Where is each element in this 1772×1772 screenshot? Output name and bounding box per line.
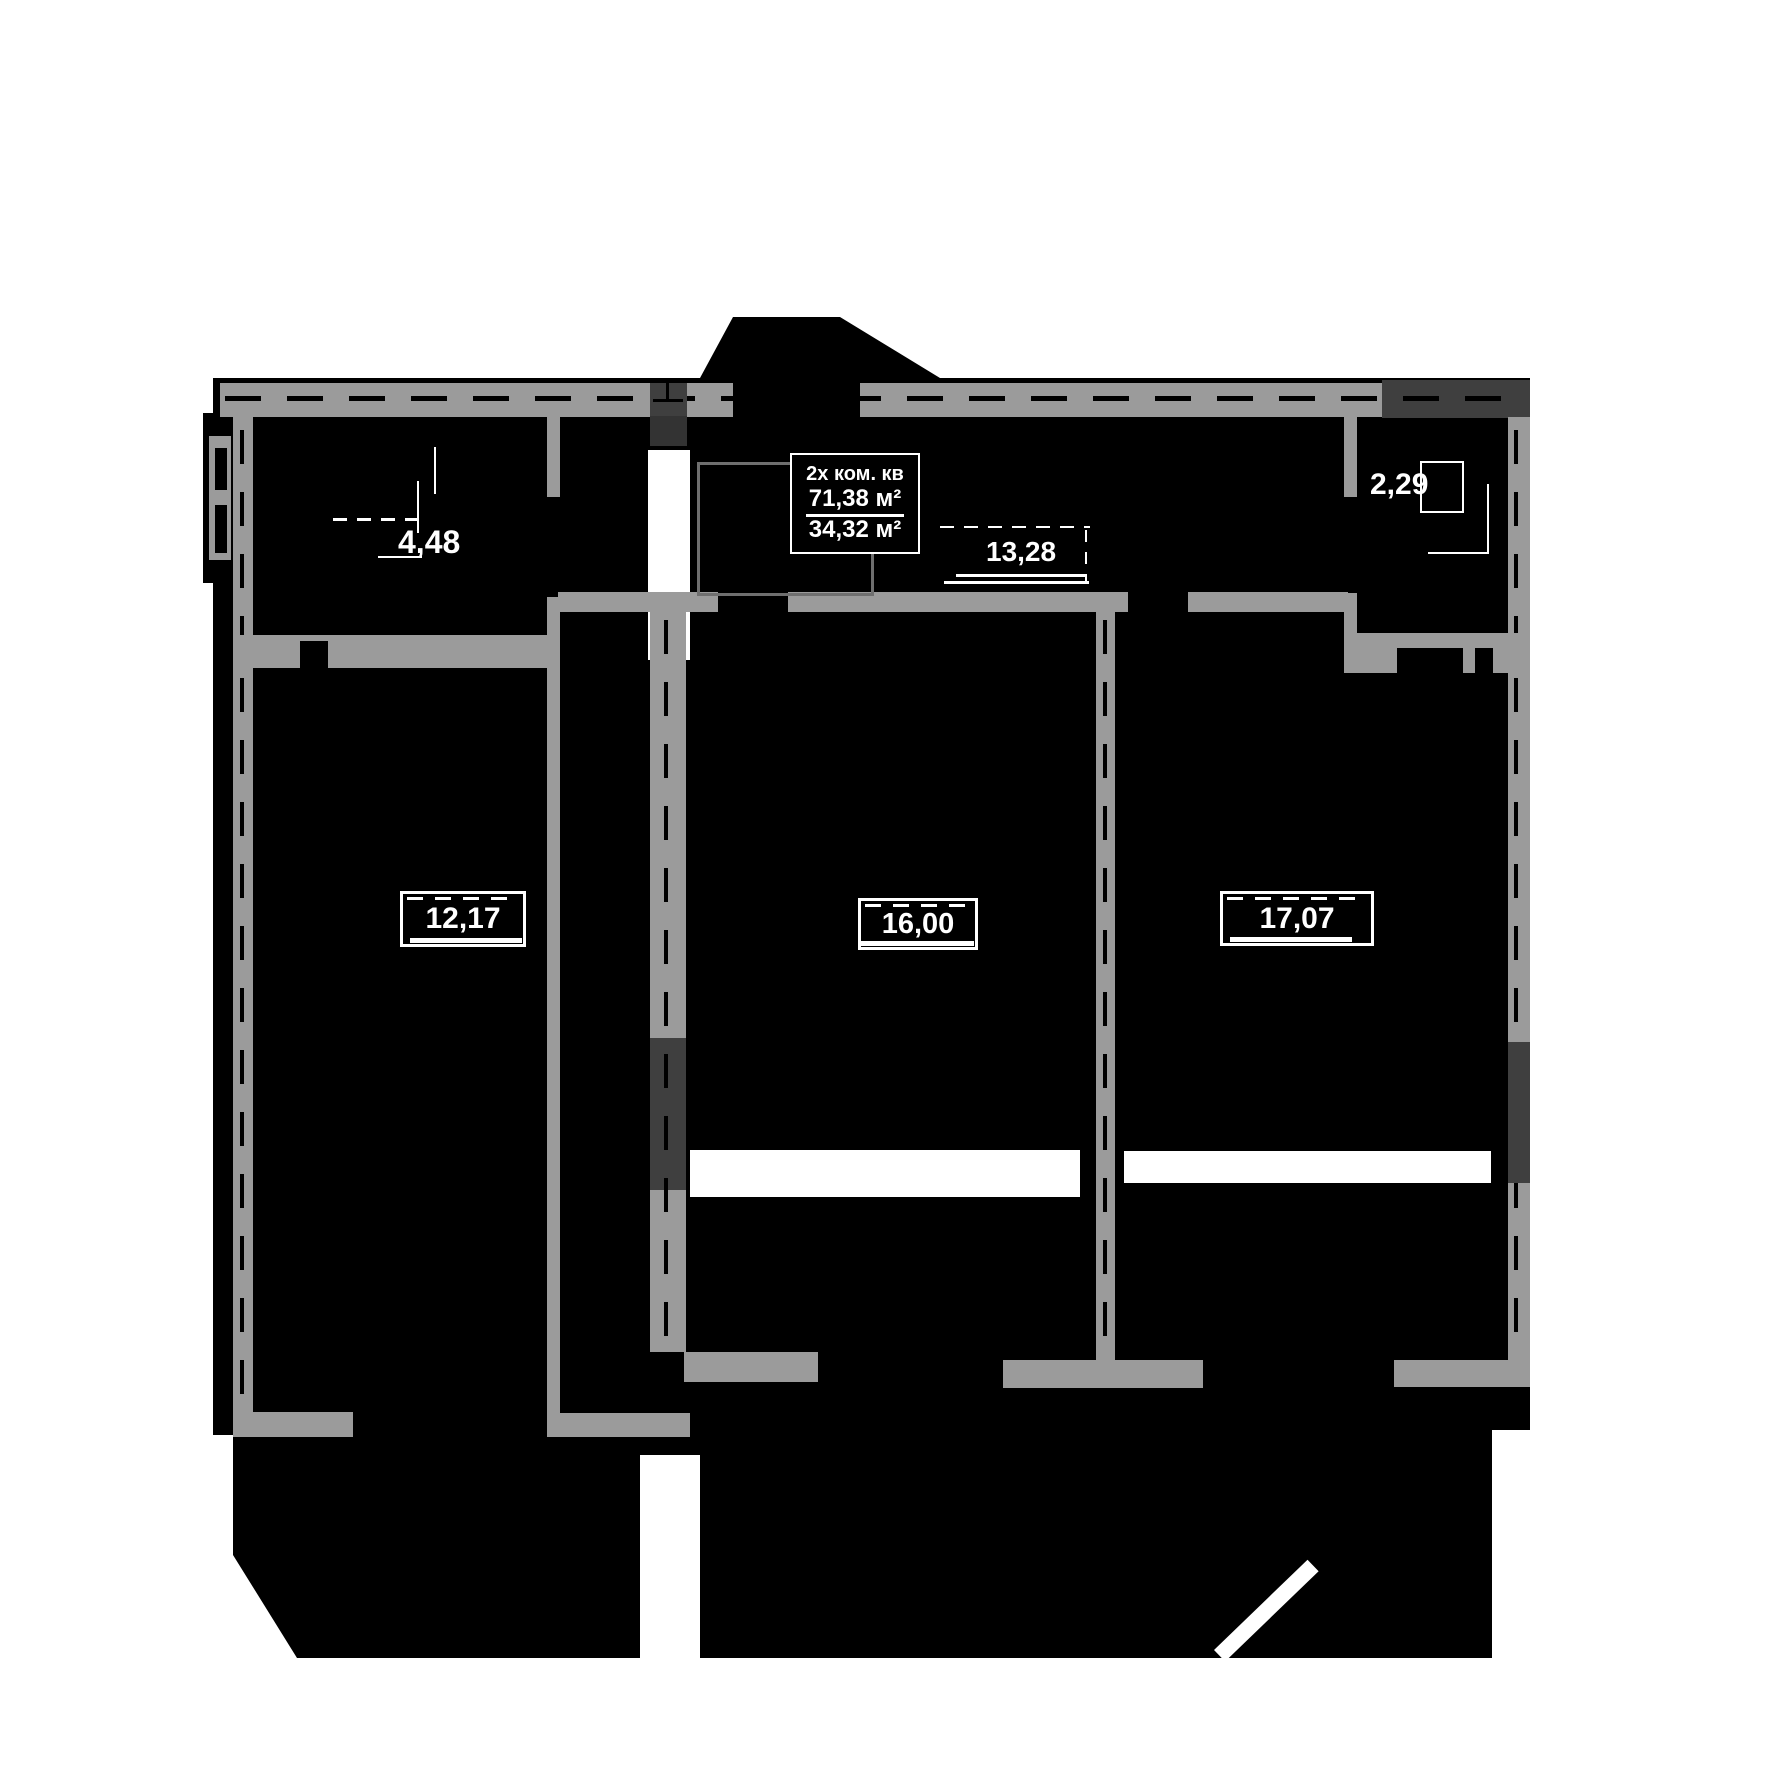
entry-door-block bbox=[650, 383, 687, 416]
leader-dashes bbox=[333, 518, 417, 521]
corner-bracket bbox=[1487, 484, 1489, 554]
wall-pier-dark bbox=[650, 1038, 686, 1190]
label-dashed-edge bbox=[1227, 897, 1367, 900]
wall-footing-bottom-left bbox=[233, 1412, 353, 1437]
window-bay-slot bbox=[215, 448, 227, 490]
wall-left-room-right bbox=[547, 668, 560, 1413]
wall-footing-middle bbox=[684, 1352, 818, 1382]
label-dashed-edge bbox=[865, 904, 971, 907]
leader-line bbox=[417, 481, 419, 533]
label-underline bbox=[410, 938, 522, 943]
label-underline bbox=[956, 574, 1086, 577]
label-underline bbox=[858, 941, 974, 946]
balcony-window-opening bbox=[1475, 648, 1493, 673]
window-bay-slot bbox=[215, 505, 227, 553]
wall-axis-dashed-line bbox=[225, 396, 1525, 401]
wall-right-axis-dashes bbox=[1514, 430, 1518, 1345]
wall-footing-divider bbox=[1003, 1360, 1203, 1388]
area-value: 17,07 bbox=[1259, 902, 1334, 936]
wall-balcony-left-upper bbox=[1344, 417, 1357, 497]
living-area-value: 34,32 м² bbox=[809, 517, 901, 544]
floor-plan-canvas: 2х ком. кв 71,38 м² 34,32 м² 4,48 13,28 … bbox=[0, 0, 1772, 1772]
label-underline bbox=[944, 581, 1089, 584]
balcony-door-opening bbox=[1397, 648, 1463, 673]
wall-hallway-bottom bbox=[558, 592, 1348, 612]
room-area-label-hallway: 13,28 bbox=[986, 536, 1056, 568]
leader-line bbox=[378, 556, 422, 558]
wall-footing-bottom-right bbox=[1394, 1360, 1530, 1387]
door-opening bbox=[1128, 592, 1188, 612]
area-value: 12,17 bbox=[425, 902, 500, 936]
wall-middle-room-left-lower bbox=[650, 1190, 686, 1352]
leader-line bbox=[434, 447, 436, 494]
shaft-opening-bottom bbox=[640, 1455, 700, 1660]
entry-threshold bbox=[650, 416, 687, 446]
corner-bracket bbox=[1428, 552, 1489, 554]
window-strip-middle-room bbox=[690, 1150, 1080, 1197]
total-area-value: 71,38 м² bbox=[806, 486, 904, 517]
title-box: 2х ком. кв 71,38 м² 34,32 м² bbox=[790, 453, 920, 554]
wall-axis-dashes bbox=[1103, 620, 1107, 1350]
label-underline bbox=[1230, 937, 1352, 942]
wall-axis-dashes bbox=[664, 620, 668, 1340]
wall-bathroom-bottom bbox=[235, 635, 558, 668]
wall-middle-room-left bbox=[650, 612, 686, 1038]
wall-bathroom-right-upper bbox=[547, 417, 560, 497]
wall-footing-center-left bbox=[547, 1413, 690, 1437]
label-box-outline bbox=[1420, 461, 1464, 513]
door-opening bbox=[300, 641, 328, 668]
wall-left-axis-dashes bbox=[240, 430, 244, 1420]
label-dashed-edge bbox=[940, 526, 1090, 528]
window-strip-right-room bbox=[1124, 1151, 1491, 1183]
apartment-type-label: 2х ком. кв bbox=[806, 463, 904, 485]
wall-pier-dark-right bbox=[1508, 1042, 1530, 1183]
area-value: 16,00 bbox=[882, 908, 955, 941]
door-swing-mark bbox=[653, 399, 683, 402]
label-dashed-edge bbox=[407, 897, 519, 900]
label-dashed-edge bbox=[1085, 530, 1087, 582]
wall-right-exterior bbox=[1508, 417, 1530, 1360]
